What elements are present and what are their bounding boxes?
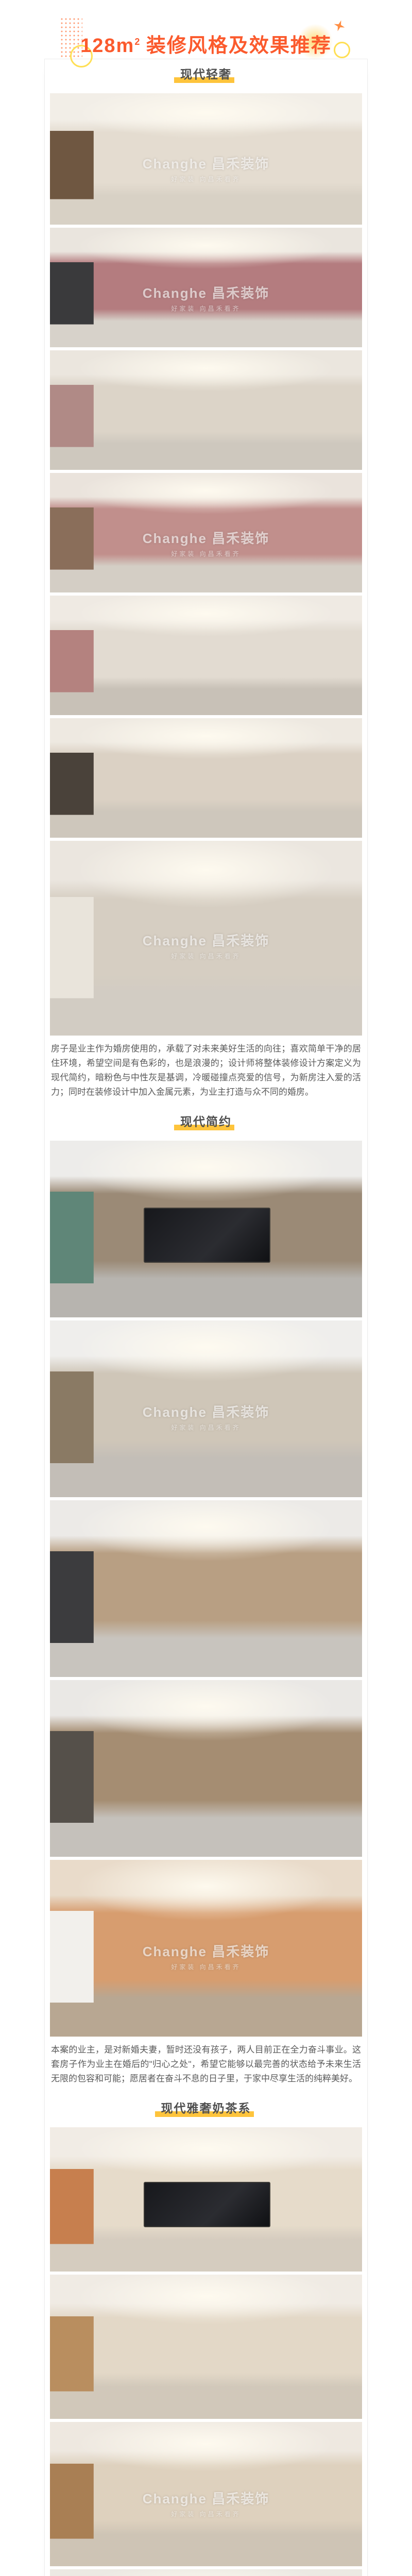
page-title: 128m2 装修风格及效果推荐: [80, 28, 332, 59]
interior-photo-living-room-overview[interactable]: Changhe 昌禾装饰好家装 向昌禾看齐: [50, 2422, 362, 2566]
watermark-tagline: 好家装 向昌禾看齐: [50, 1423, 362, 1432]
tv-screen: [144, 1208, 270, 1263]
photo-list-1: Changhe 昌禾装饰好家装 向昌禾看齐Changhe 昌禾装饰好家装 向昌禾…: [50, 93, 362, 1036]
photo-watermark: Changhe 昌禾装饰好家装 向昌禾看齐: [50, 283, 362, 313]
interior-photo-bar-counter[interactable]: [50, 1680, 362, 1857]
watermark-tagline: 好家装 向昌禾看齐: [50, 952, 362, 960]
watermark-tagline: 好家装 向昌禾看齐: [50, 1962, 362, 1971]
watermark-brand: Changhe 昌禾装饰: [50, 930, 362, 950]
photo-list-2: Changhe 昌禾装饰好家装 向昌禾看齐Changhe 昌禾装饰好家装 向昌禾…: [50, 1141, 362, 2037]
interior-photo-living-room-gold-chandelier[interactable]: [50, 2127, 362, 2272]
watermark-brand: Changhe 昌禾装饰: [50, 528, 362, 547]
watermark-tagline: 好家装 向昌禾看齐: [50, 304, 362, 313]
section-heading-1: 现代轻奢: [50, 66, 362, 82]
section-paragraph-2: 本案的业主，是对新婚夫妻，暂时还没有孩子，两人目前正在全力奋斗事业。这套房子作为…: [51, 2043, 361, 2086]
watermark-brand: Changhe 昌禾装饰: [50, 2488, 362, 2507]
article-card: 现代轻奢 Changhe 昌禾装饰好家装 向昌禾看齐Changhe 昌禾装饰好家…: [44, 59, 368, 2576]
tv-screen: [144, 2182, 270, 2227]
heading-highlight: 现代简约: [180, 1114, 232, 1129]
circle-decoration-right: [334, 42, 350, 58]
section-modern-light-luxury: 现代轻奢 Changhe 昌禾装饰好家装 向昌禾看齐Changhe 昌禾装饰好家…: [50, 66, 362, 1099]
section-heading-2: 现代简约: [50, 1114, 362, 1129]
interior-photo-entry-corridor[interactable]: Changhe 昌禾装饰好家装 向昌禾看齐: [50, 841, 362, 1036]
photo-watermark: Changhe 昌禾装饰好家装 向昌禾看齐: [50, 2488, 362, 2518]
section-paragraph-1: 房子是业主作为婚房使用的，承载了对未来美好生活的向往；喜欢简单干净的居住环境，希…: [51, 1042, 361, 1099]
interior-photo-dining-kitchen-glass-door[interactable]: [50, 1500, 362, 1677]
interior-photo-dining-room-pink-wall[interactable]: Changhe 昌禾装饰好家装 向昌禾看齐: [50, 473, 362, 592]
dots-decoration: [60, 17, 82, 57]
article-page: 128m2 装修风格及效果推荐 现代轻奢 Changhe 昌禾装饰好家装 向昌禾…: [0, 0, 412, 2576]
section-modern-minimalist: 现代简约 Changhe 昌禾装饰好家装 向昌禾看齐Changhe 昌禾装饰好家…: [50, 1114, 362, 2086]
interior-photo-living-room-sofa-pendant[interactable]: Changhe 昌禾装饰好家装 向昌禾看齐: [50, 1320, 362, 1497]
photo-list-3: Changhe 昌禾装饰好家装 向昌禾看齐Changhe 昌禾装饰好家装 向昌禾…: [50, 2127, 362, 2576]
interior-photo-sofa-detail[interactable]: [50, 596, 362, 715]
photo-watermark: Changhe 昌禾装饰好家装 向昌禾看齐: [50, 1941, 362, 1971]
heading-highlight: 现代轻奢: [180, 66, 232, 82]
watermark-tagline: 好家装 向昌禾看齐: [50, 2510, 362, 2518]
page-header: 128m2 装修风格及效果推荐: [0, 0, 412, 44]
heading-highlight: 现代雅奢奶茶系: [161, 2100, 251, 2116]
photo-watermark: Changhe 昌禾装饰好家装 向昌禾看齐: [50, 154, 362, 183]
watermark-tagline: 好家装 向昌禾看齐: [50, 549, 362, 558]
interior-photo-study-marble-desk[interactable]: [50, 2569, 362, 2576]
title-main-text: 装修风格及效果推荐: [140, 35, 332, 57]
photo-watermark: Changhe 昌禾装饰好家装 向昌禾看齐: [50, 528, 362, 558]
interior-photo-living-room-tv-wall[interactable]: Changhe 昌禾装饰好家装 向昌禾看齐: [50, 93, 362, 225]
interior-photo-dining-area-wine-cabinet[interactable]: [50, 718, 362, 838]
watermark-brand: Changhe 昌禾装饰: [50, 283, 362, 302]
title-area-number: 128m: [80, 35, 134, 57]
interior-photo-living-room-wide-view[interactable]: [50, 350, 362, 470]
interior-photo-study-tatami-room[interactable]: Changhe 昌禾装饰好家装 向昌禾看齐: [50, 1860, 362, 2037]
watermark-tagline: 好家装 向昌禾看齐: [50, 175, 362, 183]
section-modern-elegant-milk-tea: 现代雅奢奶茶系 Changhe 昌禾装饰好家装 向昌禾看齐Changhe 昌禾装…: [50, 2100, 362, 2576]
interior-photo-living-room-wood-slat-tv-wall[interactable]: [50, 1141, 362, 1317]
interior-photo-living-room-pink-accent-wall[interactable]: Changhe 昌禾装饰好家装 向昌禾看齐: [50, 228, 362, 347]
interior-photo-living-room-cream-sofa[interactable]: [50, 2275, 362, 2419]
title-square-sup: 2: [134, 37, 140, 47]
watermark-brand: Changhe 昌禾装饰: [50, 1941, 362, 1960]
watermark-brand: Changhe 昌禾装饰: [50, 154, 362, 173]
photo-watermark: Changhe 昌禾装饰好家装 向昌禾看齐: [50, 930, 362, 960]
watermark-brand: Changhe 昌禾装饰: [50, 1402, 362, 1421]
section-heading-3: 现代雅奢奶茶系: [50, 2100, 362, 2116]
star-icon: [332, 19, 347, 33]
photo-watermark: Changhe 昌禾装饰好家装 向昌禾看齐: [50, 1402, 362, 1432]
